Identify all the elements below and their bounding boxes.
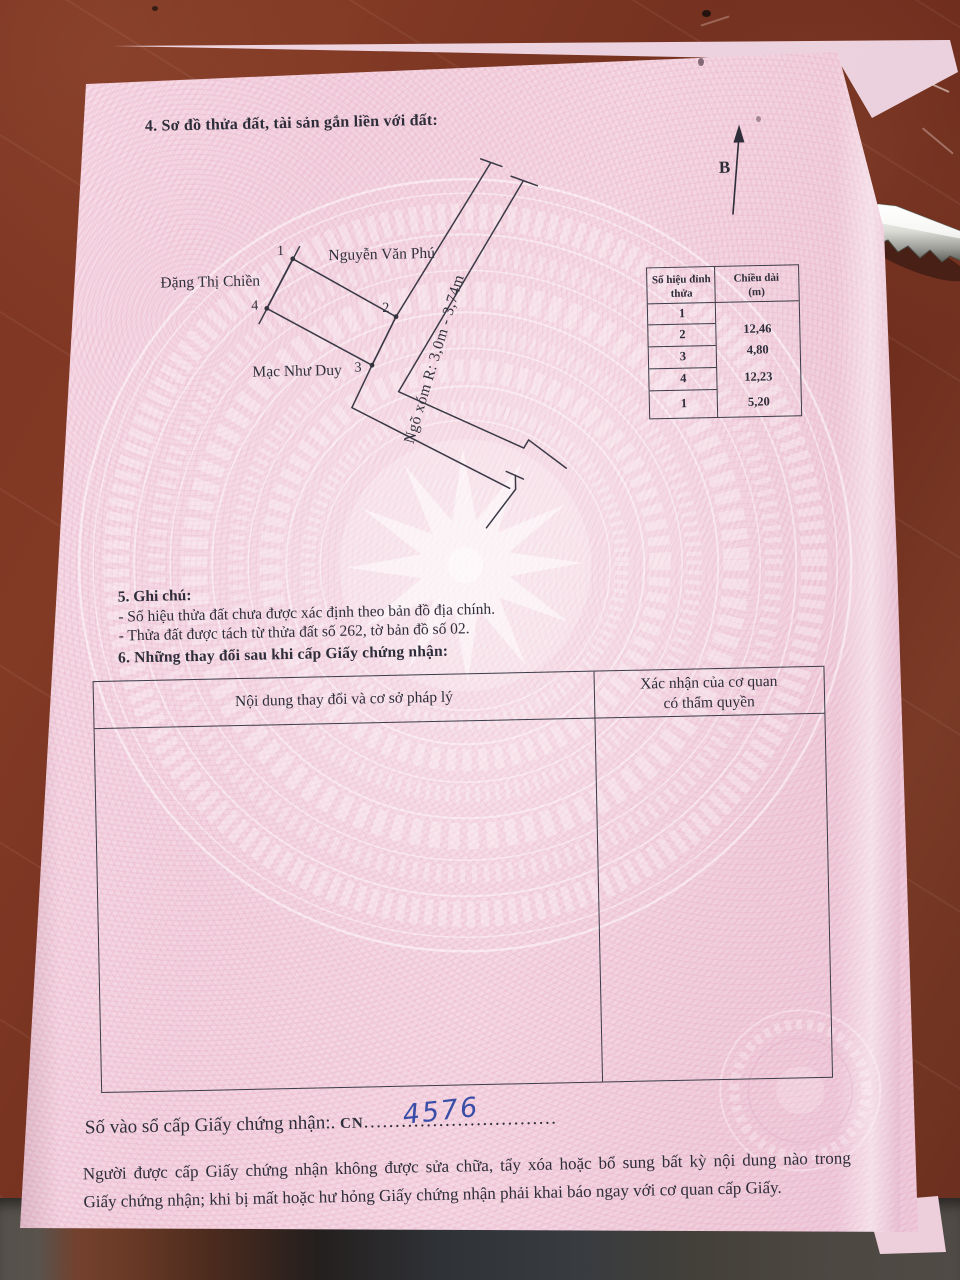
neighbor-west-label: Đặng Thị Chiền xyxy=(160,273,260,292)
parcel-sketch: 1 2 3 4 Đặng Thị Chiền Nguyễn Văn Phú Mạ… xyxy=(140,146,598,555)
vertex-id-cell: 1 xyxy=(681,396,688,411)
vertex-id-cell: 2 xyxy=(679,327,686,342)
vertex-label-4: 4 xyxy=(251,299,258,314)
table-speck xyxy=(702,10,711,17)
changes-col1-header: Nội dung thay đổi và cơ sở pháp lý xyxy=(94,685,594,715)
edge-length-table: Số hiệu đỉnh thửa Chiều dài (m) 1 2 3 4 … xyxy=(646,264,802,419)
vertex-id-cell: 1 xyxy=(679,306,686,321)
printed-content: 4. Sơ đồ thửa đất, tài sản gắn liền với … xyxy=(0,0,960,1280)
edge-length-cell: 12,46 xyxy=(743,321,771,337)
edge-table-header-col2: Chiều dài xyxy=(733,272,779,285)
changes-table: Nội dung thay đổi và cơ sở pháp lý Xác n… xyxy=(93,666,833,1093)
vertex-label-1: 1 xyxy=(277,244,284,259)
registry-code-prefix: CN xyxy=(340,1116,364,1132)
certificate-page: 4. Sơ đồ thửa đất, tài sản gắn liền với … xyxy=(0,0,960,1280)
road-label: Ngõ xóm R: 3,0m - 3,74m xyxy=(401,273,468,446)
edge-table-header-col1: Số hiệu đỉnh xyxy=(652,273,711,286)
edge-length-cell: 4,80 xyxy=(747,342,769,357)
north-arrow-head xyxy=(733,124,744,142)
neighbor-north-label: Nguyễn Văn Phú xyxy=(328,245,435,264)
footer-warning: Người được cấp Giấy chứng nhận không đượ… xyxy=(83,1144,852,1216)
vertex-label-2: 2 xyxy=(382,301,389,316)
edge-table-header-col2b: (m) xyxy=(748,286,765,298)
vertex-label-3: 3 xyxy=(354,360,361,375)
edge-table-header-col1b: thửa xyxy=(671,287,693,299)
north-arrow: B xyxy=(711,120,763,225)
section4-title: 4. Sơ đồ thửa đất, tài sản gắn liền với … xyxy=(145,112,438,136)
vertex-id-cell: 3 xyxy=(680,349,687,364)
table-speck xyxy=(152,6,158,11)
registry-label: Số vào sổ cấp Giấy chứng nhận:. xyxy=(85,1112,336,1138)
vertex-id-cell: 4 xyxy=(680,371,687,386)
edge-length-cell: 12,23 xyxy=(744,369,772,385)
north-label: B xyxy=(719,158,731,177)
edge-length-cell: 5,20 xyxy=(748,394,770,409)
neighbor-south-label: Mạc Như Duy xyxy=(252,362,342,381)
registry-line: Số vào sổ cấp Giấy chứng nhận:. CN......… xyxy=(85,1107,558,1139)
photo-of-land-certificate: 4. Sơ đồ thửa đất, tài sản gắn liền với … xyxy=(0,0,960,1280)
changes-col2-header: Xác nhận của cơ quan có thẩm quyền xyxy=(594,671,825,716)
section5-notes: 5. Ghi chú: - Số hiệu thửa đất chưa được… xyxy=(118,576,659,646)
